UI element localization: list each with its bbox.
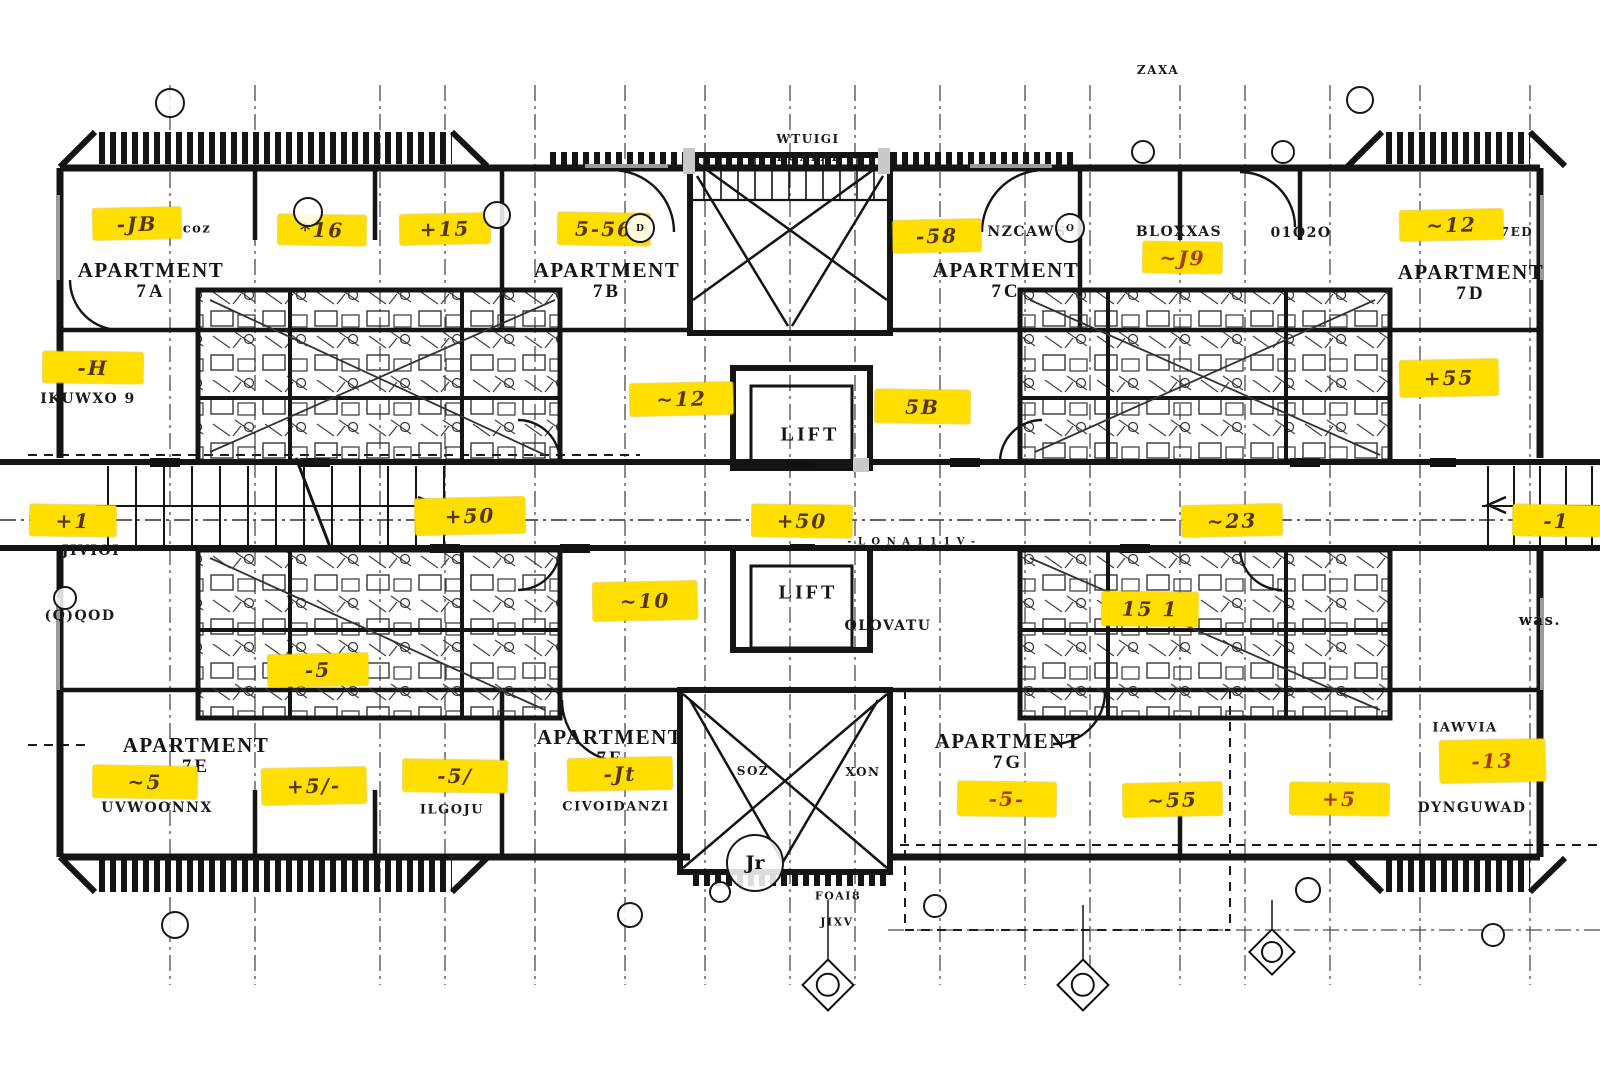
grid-bubble — [161, 911, 189, 939]
highlight-tag[interactable]: 15 1 — [1102, 591, 1198, 626]
highlight-tag[interactable]: +50 — [415, 497, 526, 535]
apartment-name: APARTMENT — [933, 259, 1080, 282]
apartment-name: APARTMENT — [123, 734, 270, 757]
apartment-unit: 7D — [1398, 284, 1545, 305]
grid-bubble — [483, 201, 511, 229]
highlight-tag[interactable]: +1 — [30, 504, 116, 536]
highlight-tag[interactable]: -13 — [1440, 739, 1546, 783]
grid-bubble — [53, 586, 77, 610]
highlight-tag[interactable]: ~12 — [1400, 209, 1504, 241]
grid-bubble: D — [625, 213, 655, 243]
plan-annotation: UVWOONNX — [101, 800, 213, 816]
plan-annotation: JIXV — [820, 916, 853, 929]
plan-annotation: WTUIGI — [776, 132, 839, 146]
apartment-name: APARTMENT — [537, 726, 684, 749]
highlight-tag[interactable]: -Jt — [568, 757, 673, 791]
apartment-name: APARTMENT — [935, 730, 1082, 753]
plan-annotation: 01O2O — [1270, 225, 1331, 241]
grid-bubble — [617, 902, 643, 928]
plan-annotation: SOZ — [737, 764, 769, 778]
plan-annotation: BLOXXAS — [1136, 224, 1222, 240]
highlight-tag[interactable]: -H — [43, 351, 143, 383]
apartment-label: APARTMENT7B — [534, 259, 681, 303]
highlight-tag[interactable]: -5- — [958, 781, 1056, 816]
stair-core-bottom — [680, 690, 890, 872]
diamond-inner-circle — [1261, 941, 1283, 963]
highlight-tag[interactable]: -JB — [93, 207, 182, 240]
grid-bubble — [1131, 140, 1155, 164]
highlight-tag[interactable]: +15 — [400, 213, 491, 245]
highlight-tag[interactable]: -1 — [1513, 504, 1600, 536]
grid-bubble — [1271, 140, 1295, 164]
grid-bubble — [1481, 923, 1505, 947]
plan-annotation: ROALAL — [777, 150, 842, 164]
highlight-tag[interactable]: +50 — [752, 504, 852, 537]
grid-bubble — [1346, 86, 1374, 114]
highlight-tag[interactable]: *16 — [278, 214, 366, 245]
diamond-inner-circle — [816, 973, 840, 997]
lift-label: LIFT — [779, 582, 838, 605]
lift-label: LIFT — [781, 424, 840, 447]
plan-annotation: was. — [1519, 611, 1561, 629]
grid-bubble — [709, 881, 731, 903]
grid-bubble: Jr — [726, 834, 784, 892]
plan-annotation: FOAI8 — [815, 890, 861, 903]
highlight-tag[interactable]: -5 — [268, 653, 369, 687]
marker-stems — [828, 900, 1272, 968]
grid-bubble: O — [1055, 213, 1085, 243]
highlight-tag[interactable]: ~12 — [630, 382, 734, 416]
apartment-unit: 7B — [534, 282, 681, 303]
plan-annotation: CIVOIDANZI — [562, 800, 670, 815]
plan-annotation: ILGOJU — [420, 803, 484, 818]
highlight-tag[interactable]: +55 — [1400, 359, 1499, 397]
grid-bubble — [1295, 877, 1321, 903]
apartment-label: APARTMENT7G — [935, 730, 1082, 774]
apartment-label: APARTMENT7C — [933, 259, 1080, 303]
plan-annotation: coz — [183, 222, 211, 237]
apartment-name: APARTMENT — [534, 259, 681, 282]
plan-annotation: DYNGUWAD — [1418, 800, 1527, 816]
apartment-unit: 7A — [78, 282, 225, 303]
diamond-inner-circle — [1071, 973, 1095, 997]
apartment-unit: 7C — [933, 282, 1080, 303]
plan-annotation: IAWVIA — [1432, 721, 1497, 736]
apartment-name: APARTMENT — [1398, 261, 1545, 284]
plan-annotation: IKUWXO 9 — [40, 391, 136, 407]
grid-bubble — [923, 894, 947, 918]
plan-annotation: OLOVATU — [845, 618, 932, 634]
apartment-label: APARTMENT7D — [1398, 261, 1545, 305]
plan-annotation: ZAXA — [1137, 63, 1179, 77]
highlight-tag[interactable]: ~5 — [93, 765, 197, 798]
highlight-tag[interactable]: ~55 — [1123, 782, 1223, 817]
apartment-name: APARTMENT — [78, 259, 225, 282]
plan-annotation: XON — [845, 765, 880, 779]
grid-bubble — [155, 88, 185, 118]
highlight-tag[interactable]: ~J9 — [1143, 241, 1222, 273]
highlight-tag[interactable]: -58 — [893, 219, 982, 253]
highlight-tag[interactable]: 5B — [875, 389, 970, 423]
apartment-unit: 7G — [935, 753, 1082, 774]
apartment-label: APARTMENT7A — [78, 259, 225, 303]
plan-annotation: - L O N A 1 1 1 V - — [847, 537, 976, 548]
grid-bubble — [293, 197, 323, 227]
stair-corridor-left — [96, 458, 452, 552]
highlight-tag[interactable]: -5/ — [403, 759, 507, 792]
highlight-tag[interactable]: ~10 — [593, 581, 698, 621]
highlight-tag[interactable]: +5/- — [262, 767, 367, 805]
plan-annotation: (Q)QOD — [45, 608, 116, 624]
plan-annotation: 7ED — [1501, 225, 1533, 239]
highlight-tag[interactable]: ~23 — [1182, 504, 1283, 537]
floor-plan-sheet: APARTMENT7AAPARTMENT7BAPARTMENT7CAPARTME… — [0, 0, 1600, 1088]
highlight-tag[interactable]: +5 — [1290, 782, 1389, 815]
plan-annotation: JIVIOI — [62, 543, 120, 559]
